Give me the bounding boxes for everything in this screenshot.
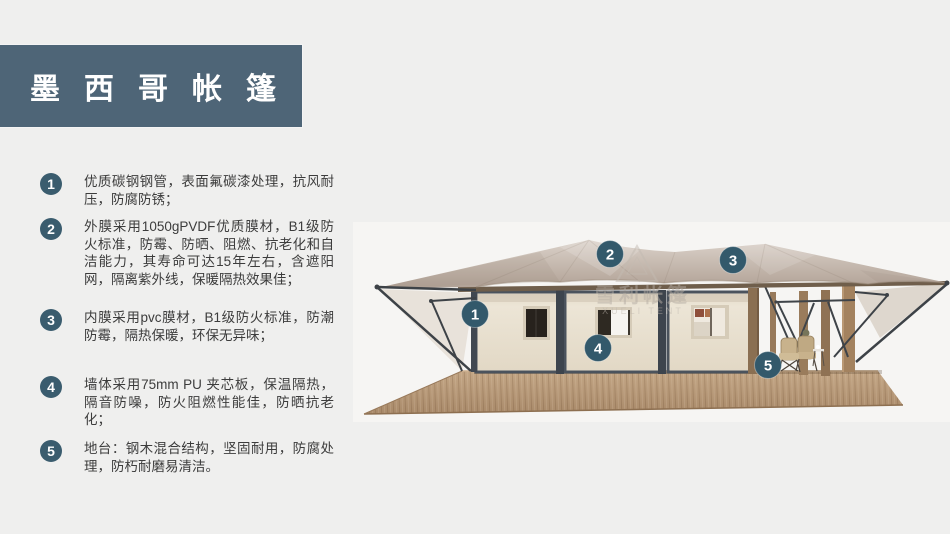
callout-badge-4: 4 (585, 335, 612, 362)
tent-illustration: 雪利帐篷 XUELI TENT 1 2 3 4 5 (0, 0, 950, 534)
callout-badge-5: 5 (755, 352, 782, 379)
callout-number: 5 (764, 358, 772, 375)
callout-number: 3 (729, 253, 737, 270)
callout-number: 1 (471, 307, 479, 324)
slide: 墨西哥帐篷 1 优质碳钢钢管，表面氟碳漆处理，抗风耐压，防腐防锈； 2 外膜采用… (0, 0, 950, 534)
watermark-cn-text: 雪利帐篷 (595, 283, 691, 307)
watermark-en-text: XUELI TENT (602, 306, 684, 316)
callout-badge-2: 2 (597, 241, 624, 268)
callout-badge-3: 3 (720, 247, 747, 274)
window-right (691, 305, 729, 339)
callout-number: 2 (606, 247, 614, 264)
callout-badge-1: 1 (462, 301, 489, 328)
window-left (523, 306, 550, 340)
callout-number: 4 (594, 341, 603, 358)
